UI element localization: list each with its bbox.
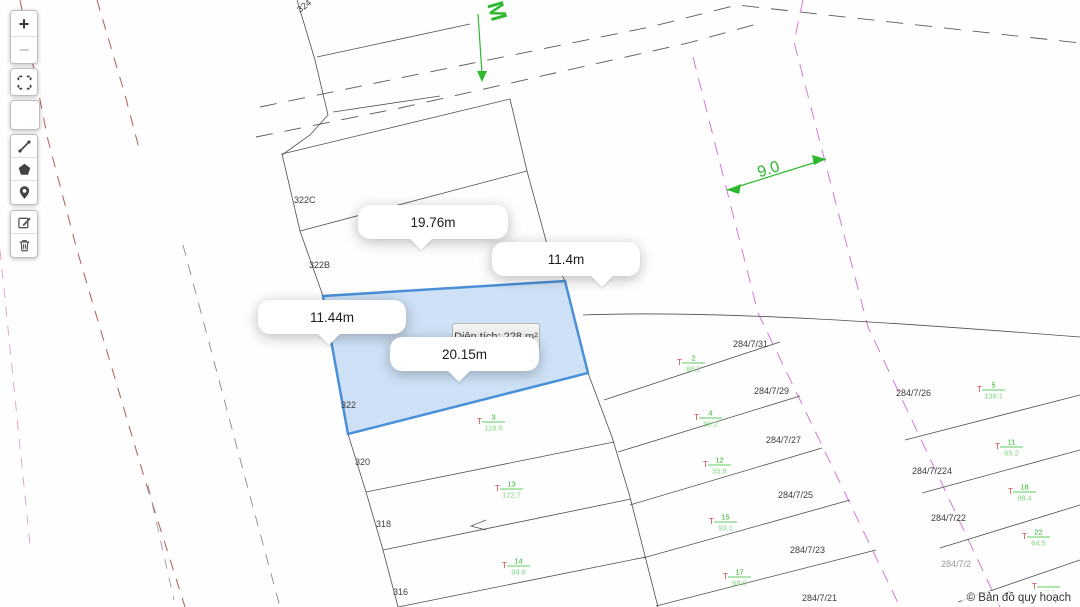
svg-text:88.4: 88.4 [1017, 494, 1032, 503]
parcel-label: 284/7/224 [912, 466, 952, 476]
boundary-red-dashed-lines [20, 0, 185, 607]
plus-icon: + [19, 15, 30, 33]
svg-text:T: T [1008, 487, 1013, 496]
map-attribution: © Bản đồ quy hoạch [962, 591, 1076, 605]
fullscreen-control [10, 68, 38, 96]
zoom-out-button[interactable]: − [11, 37, 37, 63]
svg-text:T: T [477, 417, 482, 426]
edit-button[interactable] [11, 211, 37, 234]
parcel-label: 318 [376, 519, 391, 529]
green-arrowhead-icon [477, 71, 487, 82]
svg-text:93.1: 93.1 [718, 524, 733, 533]
parcel-label: 284/7/31 [733, 339, 768, 349]
parcel-label: 284/7/29 [754, 386, 789, 396]
measure-value: 11.4m [548, 252, 585, 267]
svg-text:11: 11 [1008, 438, 1016, 447]
parcel-label: 284/7/21 [802, 593, 837, 603]
parcel-label: 284/7/26 [896, 388, 931, 398]
svg-text:T: T [977, 385, 982, 394]
green-annotations: M 9.0 [477, 0, 826, 194]
parcel-label: 284/7/23 [790, 545, 825, 555]
road-width-label: 9.0 [755, 158, 782, 181]
parcel-label: 284/7/27 [766, 435, 801, 445]
map-pin-icon [17, 185, 32, 200]
owner-label: T1165.2 [995, 438, 1023, 458]
svg-text:94.6: 94.6 [511, 568, 526, 577]
svg-text:12: 12 [715, 456, 723, 465]
owner-label: T1888.4 [1008, 483, 1036, 503]
parcel-label: 322B [309, 260, 330, 270]
svg-text:64.5: 64.5 [1031, 539, 1046, 548]
ruler-line-icon [17, 139, 32, 154]
parcel-label: 284/7/22 [931, 513, 966, 523]
gray-dashed-lines [0, 245, 280, 607]
svg-text:T: T [1032, 582, 1037, 591]
measure-tooltip: 20.15m [390, 337, 539, 371]
zoom-control: + − [10, 10, 38, 64]
svg-text:T: T [694, 413, 699, 422]
svg-text:15: 15 [721, 513, 729, 522]
layers-control [10, 100, 40, 130]
road-edge-dashed-lines [256, 5, 1080, 137]
svg-text:14: 14 [514, 557, 522, 566]
map-app: + − [0, 0, 1080, 607]
svg-text:13: 13 [507, 480, 515, 489]
svg-text:88.2: 88.2 [686, 365, 701, 374]
svg-text:3: 3 [491, 413, 495, 422]
svg-text:2: 2 [691, 354, 695, 363]
owner-label: T3118.5 [477, 413, 505, 433]
owner-label: T1255.8 [703, 456, 731, 476]
measure-value: 19.76m [410, 215, 455, 230]
measure-value: 20.15m [442, 347, 487, 362]
parcel-label: 320 [355, 457, 370, 467]
fullscreen-icon [17, 75, 32, 90]
edit-tools [10, 210, 38, 258]
svg-text:T: T [995, 442, 1000, 451]
measure-tooltip: 11.4m [492, 242, 640, 276]
polygon-icon [17, 162, 32, 177]
svg-text:17: 17 [735, 568, 743, 577]
owner-label: T495.2 [694, 409, 722, 429]
svg-text:5: 5 [991, 381, 995, 390]
measure-tools [10, 134, 38, 205]
street-name-letter: M [482, 0, 512, 24]
svg-text:T: T [1022, 532, 1027, 541]
owner-label: T1593.1 [709, 513, 737, 533]
measure-distance-button[interactable] [11, 135, 37, 158]
measure-tooltip: 11.44m [258, 300, 406, 334]
svg-text:T: T [703, 460, 708, 469]
svg-text:T: T [677, 358, 682, 367]
parcel-label: 316 [393, 587, 408, 597]
svg-text:4: 4 [708, 409, 712, 418]
edit-pencil-icon [17, 215, 32, 230]
owner-label: T2264.5 [1022, 528, 1050, 548]
owner-label: T288.2 [677, 354, 705, 374]
layers-button[interactable] [11, 101, 39, 129]
svg-text:138.1: 138.1 [984, 392, 1003, 401]
svg-text:22: 22 [1034, 528, 1042, 537]
owner-label: T5138.1 [977, 381, 1005, 401]
add-marker-button[interactable] [11, 181, 37, 204]
parcel-label: 284/7/2 [941, 559, 971, 569]
owner-label: T13122.7 [495, 480, 523, 500]
parcel-label: 284/7/25 [778, 490, 813, 500]
svg-text:18: 18 [1020, 483, 1028, 492]
owner-label: T1768.0 [723, 568, 751, 588]
fullscreen-button[interactable] [11, 69, 37, 95]
owner-label: T1494.6 [502, 557, 530, 577]
svg-text:65.2: 65.2 [1004, 449, 1019, 458]
trash-icon [17, 238, 32, 253]
svg-text:95.2: 95.2 [703, 420, 718, 429]
minus-icon: − [19, 41, 30, 59]
delete-button[interactable] [11, 234, 37, 257]
measure-value: 11.44m [310, 310, 354, 325]
svg-text:122.7: 122.7 [502, 491, 521, 500]
parcel-label: 322 [341, 400, 356, 410]
measure-tooltip: 19.76m [358, 205, 508, 239]
zoom-in-button[interactable]: + [11, 11, 37, 37]
svg-text:T: T [495, 484, 500, 493]
svg-text:T: T [723, 572, 728, 581]
svg-text:68.0: 68.0 [732, 579, 747, 588]
svg-text:T: T [709, 517, 714, 526]
measure-area-button[interactable] [11, 158, 37, 181]
svg-text:118.5: 118.5 [484, 424, 502, 433]
svg-text:T: T [502, 561, 507, 570]
parcel-label: 322C [294, 195, 316, 205]
svg-text:55.8: 55.8 [712, 467, 727, 476]
map-canvas[interactable]: M 9.0 324322C322B322320318316284/7/31284… [0, 0, 1080, 607]
